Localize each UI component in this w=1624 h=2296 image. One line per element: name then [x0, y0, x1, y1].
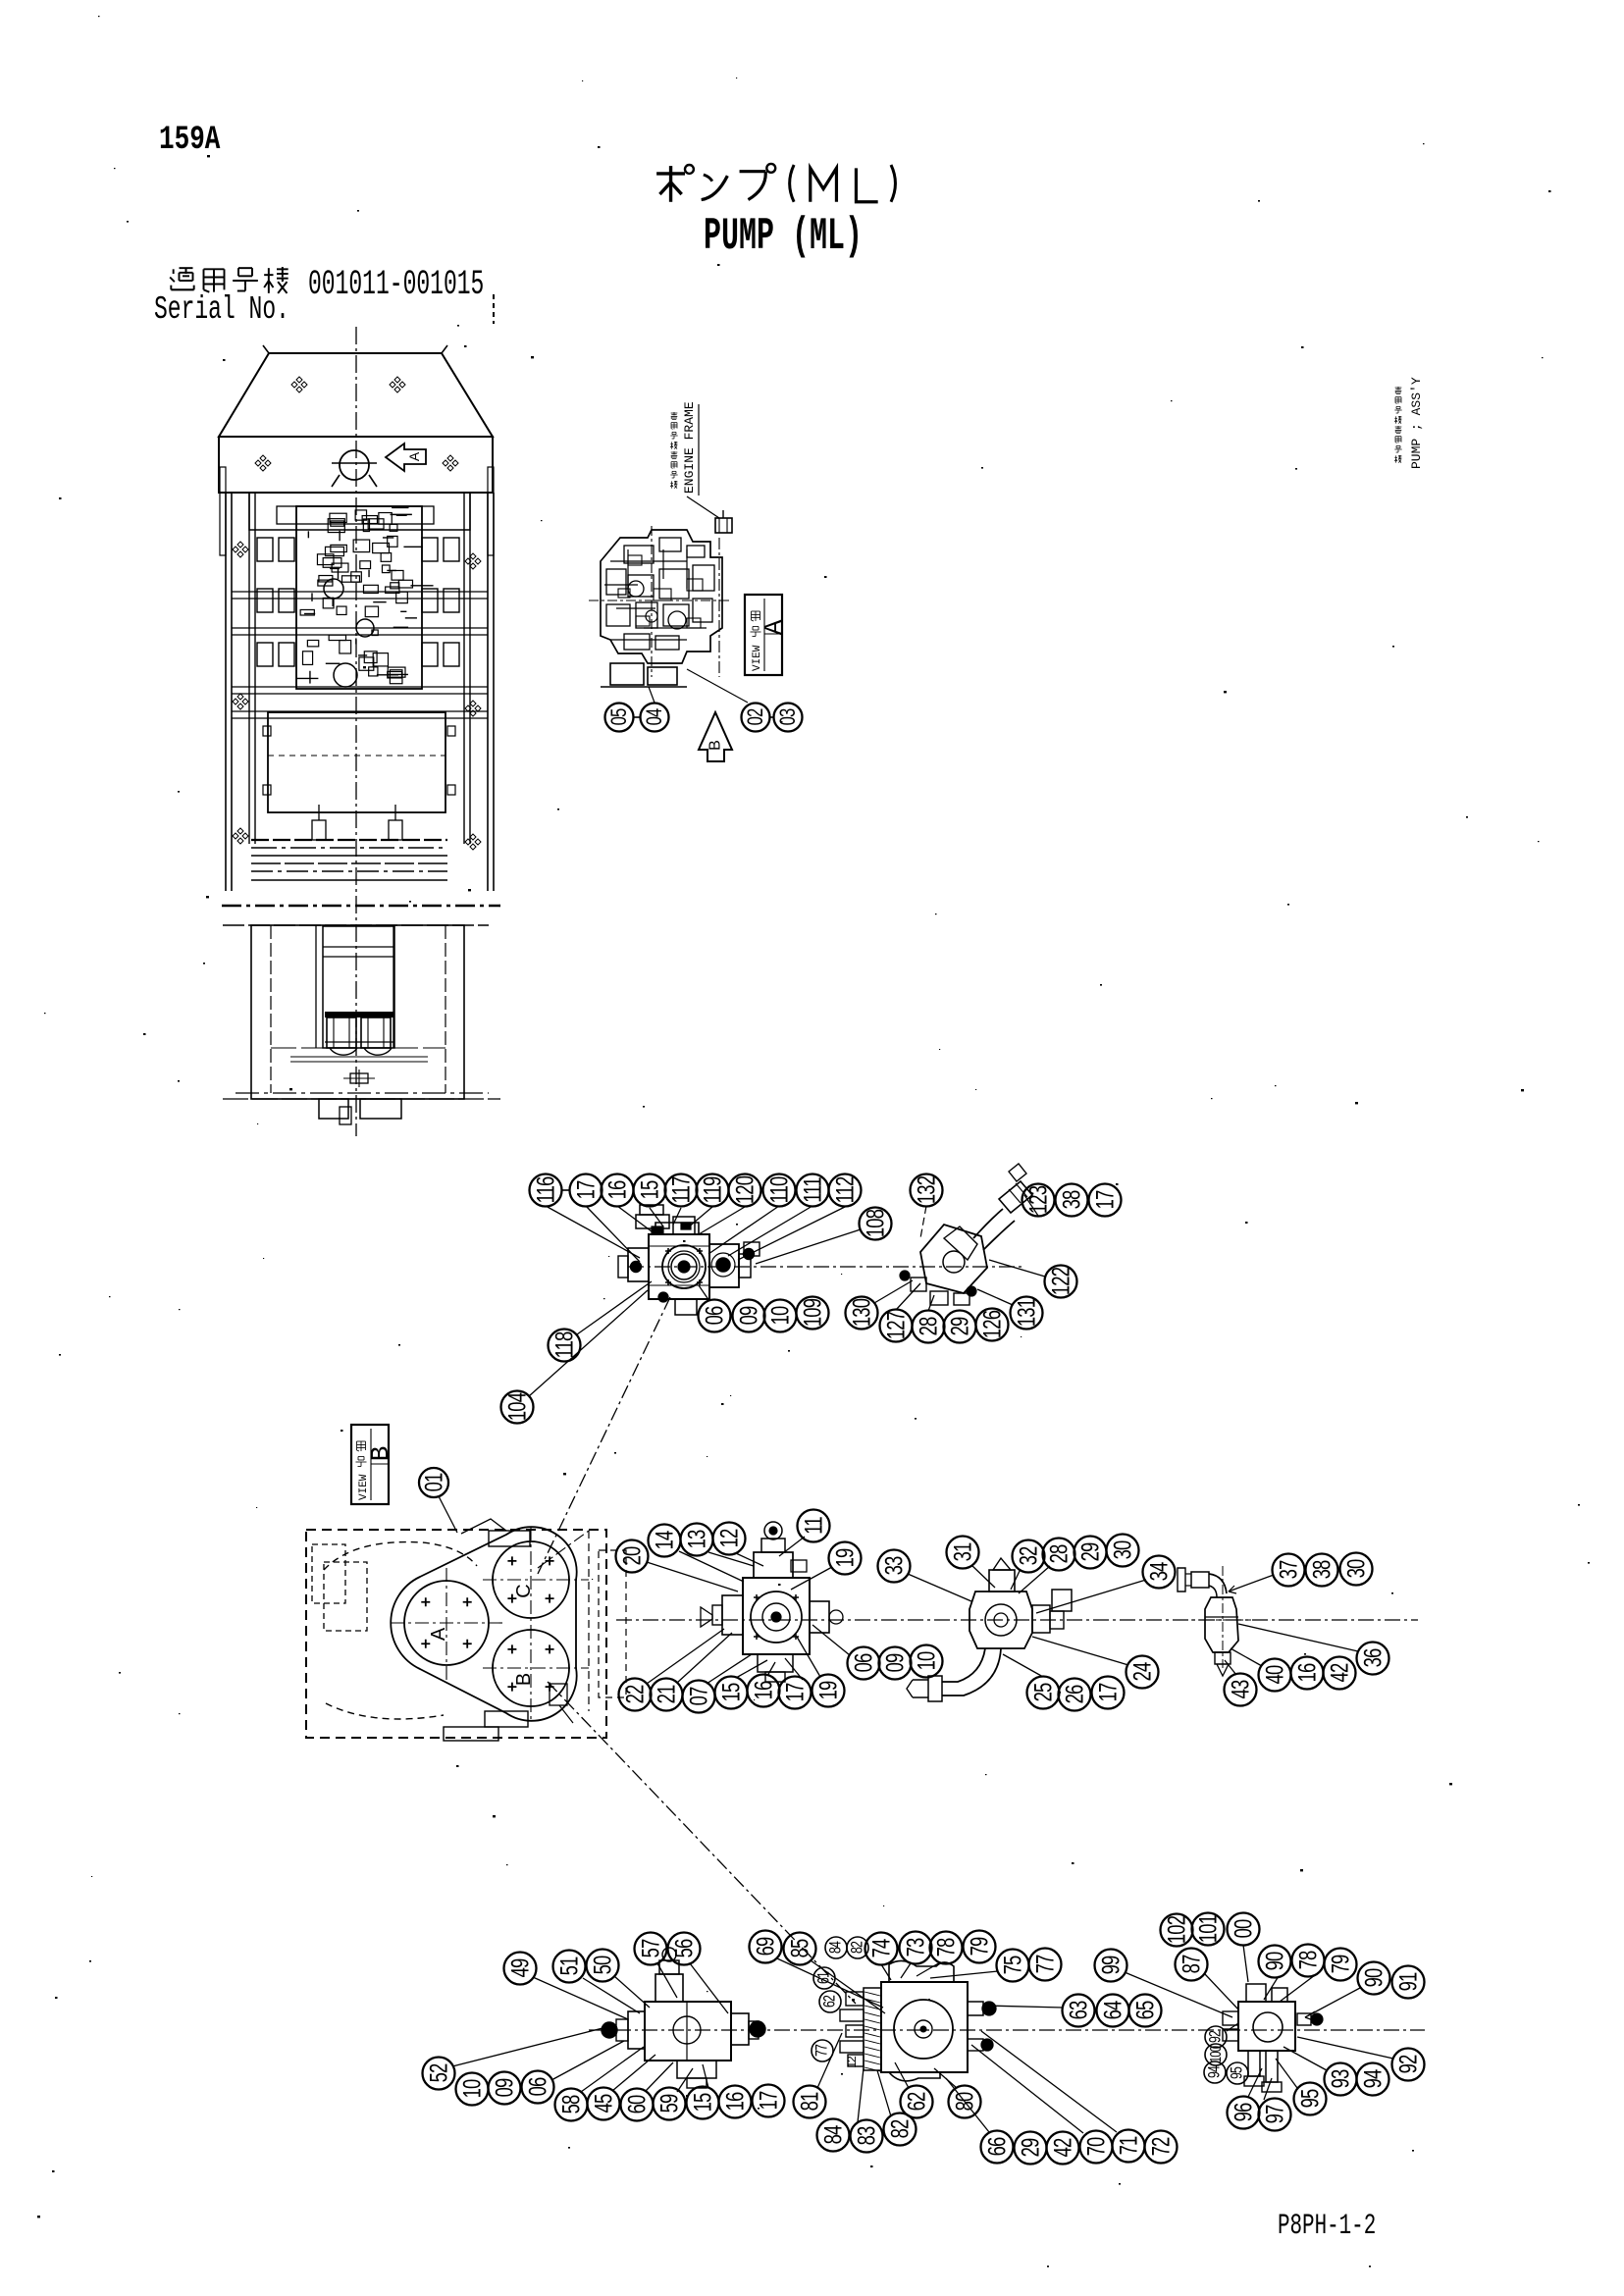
- svg-text:71: 71: [1115, 2136, 1142, 2156]
- svg-text:10: 10: [913, 1651, 940, 1671]
- svg-text:06: 06: [701, 1306, 728, 1326]
- svg-text:001011-001015: 001011-001015: [308, 265, 484, 304]
- svg-text:72: 72: [1147, 2137, 1175, 2157]
- svg-text:60: 60: [623, 2095, 651, 2114]
- svg-text:17: 17: [1094, 1683, 1122, 1702]
- svg-text:101: 101: [1194, 1914, 1222, 1943]
- svg-text:28: 28: [915, 1317, 942, 1336]
- svg-text:119: 119: [699, 1176, 726, 1204]
- svg-text:09: 09: [491, 2078, 518, 2098]
- svg-text:95: 95: [1296, 2089, 1324, 2109]
- svg-text:06: 06: [524, 2077, 551, 2097]
- svg-text:15: 15: [717, 1683, 745, 1702]
- svg-text:82: 82: [849, 1941, 866, 1954]
- svg-text:49: 49: [506, 1958, 534, 1978]
- svg-text:95: 95: [1229, 2066, 1246, 2079]
- svg-text:63: 63: [1065, 2001, 1092, 2020]
- svg-text:79: 79: [1327, 1955, 1354, 1974]
- svg-text:66: 66: [983, 2137, 1011, 2157]
- svg-text:102: 102: [1163, 1915, 1190, 1944]
- svg-text:VIEW: VIEW: [358, 1474, 370, 1500]
- svg-text:21: 21: [653, 1685, 680, 1704]
- svg-text:A: A: [760, 619, 789, 635]
- svg-text:01: 01: [420, 1473, 447, 1492]
- svg-text:159A: 159A: [159, 122, 221, 159]
- svg-text:51: 51: [555, 1957, 583, 1976]
- svg-text:90: 90: [1261, 1952, 1288, 1971]
- svg-text:56: 56: [670, 1939, 698, 1958]
- svg-text:26: 26: [1061, 1685, 1088, 1704]
- svg-text:13: 13: [683, 1530, 710, 1549]
- svg-text:104: 104: [503, 1392, 531, 1421]
- svg-text:77: 77: [813, 2044, 831, 2057]
- svg-text:38: 38: [1058, 1190, 1085, 1210]
- svg-text:29: 29: [946, 1317, 973, 1336]
- svg-text:69: 69: [752, 1937, 779, 1957]
- svg-text:30: 30: [1109, 1540, 1136, 1560]
- svg-text:42: 42: [1049, 2138, 1076, 2158]
- svg-text:78: 78: [1294, 1951, 1322, 1970]
- svg-text:43: 43: [1227, 1680, 1254, 1699]
- svg-text:109: 109: [799, 1298, 826, 1327]
- svg-text:62: 62: [821, 1995, 839, 2008]
- svg-text:10: 10: [766, 1306, 794, 1326]
- svg-text:29: 29: [1017, 2138, 1044, 2158]
- svg-text:37: 37: [1275, 1560, 1302, 1580]
- svg-text:132: 132: [913, 1175, 940, 1204]
- svg-text:52: 52: [425, 2063, 452, 2083]
- svg-text:77: 77: [1031, 1955, 1059, 1974]
- svg-text:45: 45: [590, 2094, 617, 2113]
- svg-text:40: 40: [1261, 1665, 1288, 1685]
- svg-text:16: 16: [603, 1180, 631, 1200]
- svg-text:116: 116: [532, 1176, 559, 1204]
- svg-text:81: 81: [796, 2092, 823, 2112]
- svg-text:70: 70: [1082, 2137, 1110, 2157]
- svg-text:82: 82: [886, 2119, 914, 2139]
- svg-text:17: 17: [572, 1180, 600, 1200]
- svg-text:Serial No.: Serial No.: [154, 290, 289, 328]
- svg-text:78: 78: [932, 1938, 960, 1957]
- svg-text:B: B: [366, 1446, 395, 1461]
- svg-text:17: 17: [781, 1683, 809, 1702]
- svg-text:31: 31: [949, 1542, 976, 1562]
- svg-text:84: 84: [827, 1941, 845, 1954]
- svg-text:127: 127: [882, 1311, 910, 1339]
- svg-text:P8PH-1-2: P8PH-1-2: [1278, 2210, 1376, 2243]
- svg-text:126: 126: [978, 1310, 1006, 1338]
- svg-text:92: 92: [1207, 2030, 1225, 2043]
- svg-text:123: 123: [1024, 1185, 1052, 1214]
- svg-text:91: 91: [1394, 1972, 1422, 1992]
- svg-text:74: 74: [867, 1939, 895, 1958]
- svg-text:94: 94: [1206, 2065, 1224, 2078]
- svg-text:85: 85: [786, 1939, 813, 1958]
- svg-text:15: 15: [636, 1180, 663, 1200]
- svg-text:06: 06: [850, 1653, 877, 1673]
- svg-text:04: 04: [643, 708, 667, 726]
- svg-text:29: 29: [1076, 1542, 1104, 1562]
- svg-text:07: 07: [685, 1687, 712, 1706]
- svg-text:117: 117: [667, 1176, 695, 1204]
- svg-text:99: 99: [1097, 1956, 1125, 1975]
- svg-text:30: 30: [1342, 1559, 1370, 1579]
- svg-text:VIEW: VIEW: [752, 645, 763, 671]
- svg-text:59: 59: [655, 2094, 683, 2113]
- svg-text:ENGINE FRAME: ENGINE FRAME: [682, 401, 697, 494]
- svg-text:02: 02: [744, 709, 768, 726]
- svg-text:97: 97: [1261, 2105, 1288, 2124]
- svg-text:65: 65: [1131, 2001, 1159, 2020]
- svg-text:92: 92: [1394, 2055, 1422, 2074]
- svg-text:75: 75: [999, 1956, 1026, 1975]
- svg-text:94: 94: [1359, 2069, 1387, 2089]
- svg-text:05: 05: [607, 708, 632, 726]
- svg-text:33: 33: [880, 1556, 908, 1576]
- svg-text:16: 16: [750, 1681, 777, 1700]
- svg-text:87: 87: [1178, 1955, 1205, 1974]
- svg-text:09: 09: [881, 1653, 909, 1673]
- svg-text:83: 83: [853, 2126, 880, 2146]
- svg-text:12: 12: [845, 2056, 859, 2068]
- svg-text:C: C: [513, 1585, 535, 1598]
- svg-text:B: B: [513, 1673, 535, 1686]
- svg-text:PUMP ; ASS'Y: PUMP ; ASS'Y: [1409, 377, 1424, 469]
- svg-text:131: 131: [1013, 1298, 1040, 1327]
- svg-text:22: 22: [621, 1685, 649, 1704]
- svg-text:03: 03: [776, 708, 801, 726]
- svg-text:25: 25: [1029, 1683, 1057, 1702]
- svg-text:24: 24: [1128, 1662, 1156, 1682]
- svg-text:118: 118: [550, 1331, 578, 1359]
- svg-text:130: 130: [848, 1298, 875, 1327]
- svg-text:73: 73: [902, 1938, 929, 1957]
- svg-text:16: 16: [721, 2092, 749, 2112]
- svg-text:32: 32: [1015, 1546, 1042, 1566]
- svg-text:90: 90: [1360, 1968, 1388, 1988]
- svg-text:19: 19: [831, 1548, 859, 1568]
- svg-text:111: 111: [799, 1177, 826, 1203]
- svg-text:36: 36: [1359, 1648, 1387, 1668]
- svg-text:11: 11: [800, 1517, 827, 1535]
- svg-text:84: 84: [819, 2125, 847, 2145]
- svg-text:62: 62: [903, 2092, 930, 2112]
- svg-text:14: 14: [651, 1531, 678, 1550]
- svg-text:93: 93: [1327, 2069, 1354, 2089]
- svg-text:38: 38: [1308, 1560, 1336, 1580]
- svg-text:34: 34: [1145, 1562, 1173, 1582]
- svg-text:64: 64: [1099, 2001, 1126, 2020]
- svg-text:58: 58: [557, 2095, 585, 2114]
- svg-text:17: 17: [755, 2091, 782, 2111]
- svg-text:120: 120: [731, 1175, 759, 1204]
- svg-text:28: 28: [1045, 1544, 1073, 1564]
- svg-text:15: 15: [689, 2093, 716, 2113]
- svg-text:112: 112: [831, 1176, 859, 1204]
- svg-text:PUMP (ML): PUMP (ML): [704, 210, 863, 262]
- svg-text:42: 42: [1326, 1663, 1353, 1683]
- svg-text:19: 19: [814, 1681, 842, 1700]
- svg-text:09: 09: [735, 1306, 762, 1326]
- svg-text:B: B: [707, 741, 724, 751]
- svg-text:79: 79: [966, 1937, 993, 1957]
- svg-text:12: 12: [715, 1529, 743, 1548]
- svg-text:00: 00: [1230, 1919, 1257, 1939]
- svg-text:16: 16: [1293, 1663, 1321, 1683]
- svg-text:17: 17: [1091, 1190, 1119, 1210]
- svg-text:57: 57: [637, 1939, 664, 1958]
- svg-text:50: 50: [589, 1956, 616, 1975]
- svg-text:122: 122: [1047, 1267, 1074, 1295]
- svg-text:100: 100: [1207, 2046, 1224, 2062]
- svg-text:96: 96: [1230, 2103, 1257, 2122]
- svg-text:10: 10: [458, 2079, 486, 2099]
- svg-text:20: 20: [618, 1546, 646, 1566]
- svg-text:108: 108: [862, 1209, 889, 1237]
- svg-text:110: 110: [765, 1176, 793, 1204]
